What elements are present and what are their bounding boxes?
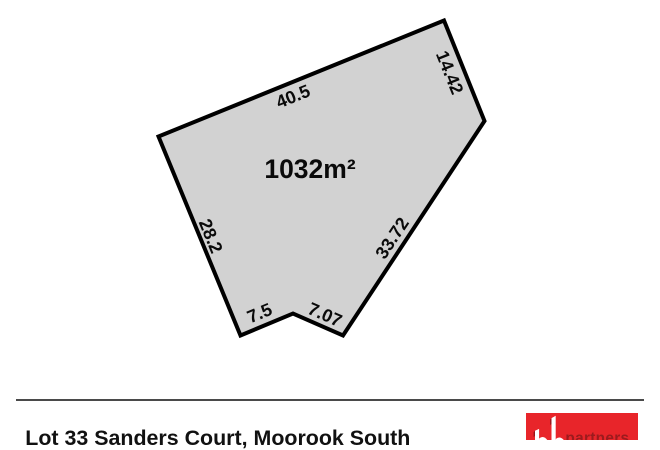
svg-text:1032m²: 1032m² <box>264 154 356 184</box>
